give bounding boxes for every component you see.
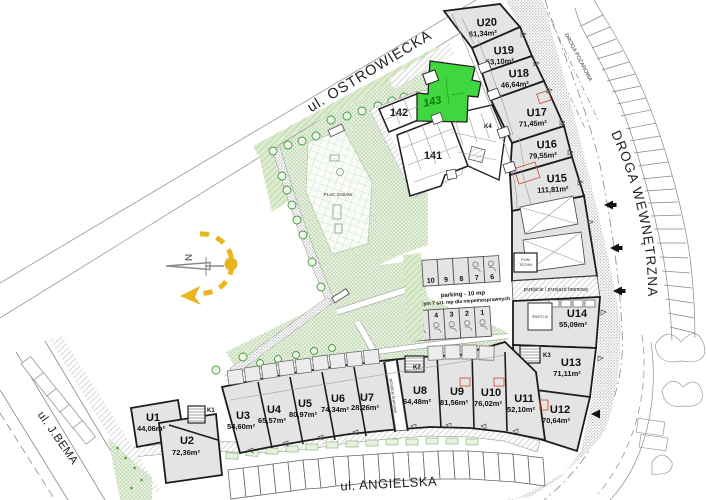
svg-text:80,97m²: 80,97m² (289, 410, 317, 419)
svg-text:K2: K2 (413, 365, 421, 371)
svg-text:U11: U11 (514, 393, 534, 405)
svg-text:1: 1 (480, 310, 484, 317)
svg-text:8: 8 (459, 276, 463, 283)
svg-text:U9: U9 (450, 386, 464, 398)
svg-text:7: 7 (475, 275, 479, 282)
svg-text:74,34m²: 74,34m² (321, 405, 349, 414)
svg-text:N: N (184, 254, 195, 261)
svg-text:U8: U8 (413, 385, 427, 397)
svg-text:U13: U13 (561, 357, 581, 369)
svg-text:U14: U14 (567, 308, 588, 320)
svg-text:U4: U4 (267, 404, 282, 416)
svg-text:52,10m²: 52,10m² (507, 405, 535, 414)
svg-text:3: 3 (449, 311, 453, 318)
svg-text:U6: U6 (331, 393, 345, 405)
svg-text:U2: U2 (180, 435, 194, 447)
svg-text:ŚWIETLIK: ŚWIETLIK (532, 314, 549, 319)
svg-text:111,81m²: 111,81m² (537, 184, 569, 195)
svg-text:81,56m²: 81,56m² (440, 398, 468, 407)
svg-text:U12: U12 (550, 404, 570, 416)
svg-text:PLAC ZABAW: PLAC ZABAW (324, 192, 354, 197)
svg-text:POM: POM (521, 258, 530, 262)
svg-text:U3: U3 (236, 410, 250, 422)
svg-text:K1: K1 (207, 408, 215, 414)
svg-text:72,36m²: 72,36m² (172, 448, 200, 457)
svg-text:10: 10 (427, 278, 435, 285)
svg-text:U1: U1 (146, 412, 160, 424)
svg-text:28,26m²: 28,26m² (351, 403, 379, 412)
svg-text:65,57m²: 65,57m² (258, 416, 286, 425)
svg-text:55,09m²: 55,09m² (559, 320, 587, 329)
svg-text:K3: K3 (543, 353, 551, 359)
svg-text:9: 9 (444, 277, 448, 284)
svg-text:71,11m²: 71,11m² (553, 369, 581, 378)
svg-text:4: 4 (434, 312, 438, 319)
svg-text:U10: U10 (481, 387, 501, 399)
svg-text:54,60m²: 54,60m² (227, 422, 255, 431)
svg-text:79,55m²: 79,55m² (529, 150, 558, 160)
svg-text:71,45m²: 71,45m² (519, 118, 548, 128)
svg-text:64,48m²: 64,48m² (403, 397, 431, 406)
svg-text:142: 142 (390, 107, 408, 119)
svg-text:2: 2 (465, 310, 469, 317)
svg-text:przejście / przejazd bramowy: przejście / przejazd bramowy (524, 287, 589, 293)
svg-text:70,64m²: 70,64m² (542, 416, 570, 425)
svg-text:76,02m²: 76,02m² (474, 399, 502, 408)
svg-text:6: 6 (490, 274, 494, 281)
svg-text:44,06m²: 44,06m² (137, 424, 165, 433)
svg-text:U5: U5 (298, 398, 312, 410)
svg-text:46,64m²: 46,64m² (501, 79, 530, 89)
svg-text:61,34m²: 61,34m² (469, 28, 498, 38)
svg-text:TECHN: TECHN (519, 263, 532, 267)
